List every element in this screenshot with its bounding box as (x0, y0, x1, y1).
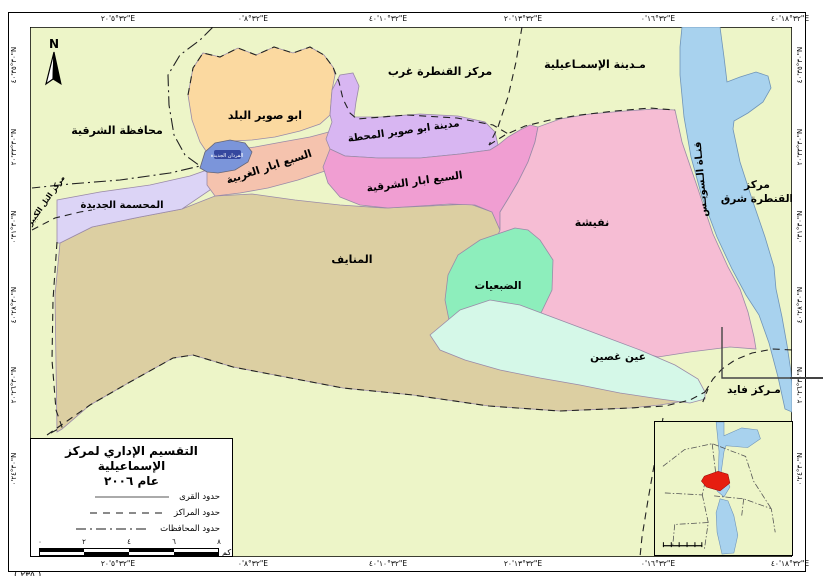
legend-line-solid (93, 494, 171, 500)
map-page: ٣٢°٥'٢٠"E ٣٢°٨'٠"E ٣٢°١٠'٤٠"E ٣٢°١٣'٢٠"E… (0, 0, 823, 576)
inset-locator-map (654, 421, 793, 556)
north-arrow: N (36, 38, 72, 90)
north-arrow-icon (39, 50, 69, 88)
legend-line-dashed (88, 510, 166, 516)
lon-label-bottom: ٣٢°١٠'٤٠"E (348, 559, 428, 568)
legend-label: حدود القرى (179, 492, 220, 502)
scale-bar: ٠ ٢ ٤ ٦ ٨ كم (31, 538, 232, 562)
neighbor-label-ismailia-city: مـدينة الإسمـاعيلية (544, 58, 646, 71)
lat-label-right: ٣٠°٣١'٠"N (796, 187, 804, 267)
scale-unit: كم (222, 548, 231, 557)
legend-line-dashdot (74, 526, 152, 532)
fayed-leader-extension (790, 377, 823, 379)
scale-bar-graphic (39, 548, 219, 556)
scale-tick: ٨ (217, 538, 221, 546)
region-label-mahsama: المحسمة الجديدة (80, 200, 163, 211)
legend-box: التقسيم الإداري لمركز الإسماعيلية عام ٢٠… (30, 438, 233, 557)
lat-label-left: ٣٠°٣٣'٢٠"N (10, 107, 18, 187)
lon-label-top: ٣٢°١٣'٢٠"E (483, 14, 563, 23)
lat-label-left: ٣٠°٣٥'٤٠"N (10, 25, 18, 105)
region-label-ain-ghosein: عين غصين (590, 351, 646, 363)
lon-label-bottom: ٣٢°١٨'٤٠"E (750, 559, 823, 568)
lat-label-left: ٣٠°٣١'٠"N (10, 187, 18, 267)
lat-label-right: ٣٠°٢٦'٢٠"N (796, 345, 804, 425)
region-label-abu-suwair-balad: ابو صوير البلد (228, 109, 302, 122)
neighbor-label-fayed: مـركز فايد (727, 384, 781, 396)
neighbor-label-qantara-sharq: مركز (743, 179, 770, 191)
neighbor-label-sharqia-gov: محافظة الشرقية (71, 124, 163, 137)
map-title-year: عام ٢٠٠٦ (31, 474, 232, 489)
scale-tick: ٤ (127, 538, 131, 546)
map-title: التقسيم الإداري لمركز الإسماعيلية (31, 444, 232, 474)
lon-label-top: ٣٢°٨'٠"E (213, 14, 293, 23)
lat-label-right: ٣٠°٣٥'٤٠"N (796, 25, 804, 105)
lon-label-bottom: ٣٢°١٦'٠"E (618, 559, 698, 568)
legend-item-villages: حدود القرى (31, 489, 232, 505)
legend-label: حدود المراكز (174, 508, 220, 518)
lon-label-top: ٣٢°١٦'٠"E (618, 14, 698, 23)
lat-label-left: ٣٠°٢٤'٠"N (10, 429, 18, 509)
lon-label-top: ٣٢°١٨'٤٠"E (750, 14, 823, 23)
lat-label-right: ٣٠°٢٨'٤٠"N (796, 265, 804, 345)
lon-label-top: ٣٢°١٠'٤٠"E (348, 14, 428, 23)
legend-item-governorates: حدود المحافظات (31, 521, 232, 537)
neighbor-label-qantara-gharb: مركز القنطرة غرب (388, 65, 492, 78)
region-label-manayef: المنايف (331, 253, 372, 266)
legend-item-markaz: حدود المراكز (31, 505, 232, 521)
north-letter: N (36, 38, 72, 50)
scale-tick: ٢ (82, 538, 86, 546)
scale-tick: ٦ (172, 538, 176, 546)
neighbor-label-qantara-sharq: القنطرة شرق (721, 193, 792, 205)
region-label-nefisha: نفيشة (575, 216, 609, 229)
lon-label-top: ٣٢°٥'٢٠"E (78, 14, 158, 23)
caption-fragment: ( ٢٣٥ ) (14, 571, 41, 576)
lat-label-right: ٣٠°٢٤'٠"N (796, 429, 804, 509)
scale-tick: ٠ (38, 538, 42, 546)
lat-label-left: ٣٠°٢٦'٢٠"N (10, 345, 18, 425)
lat-label-left: ٣٠°٢٨'٤٠"N (10, 265, 18, 345)
legend-label: حدود المحافظات (160, 524, 220, 534)
region-label-ferdan: الفردان الجديدة (211, 153, 243, 159)
region-label-dabaiyat: الضبعيات (475, 280, 522, 292)
lat-label-right: ٣٠°٣٣'٢٠"N (796, 107, 804, 187)
lon-label-bottom: ٣٢°١٣'٢٠"E (483, 559, 563, 568)
